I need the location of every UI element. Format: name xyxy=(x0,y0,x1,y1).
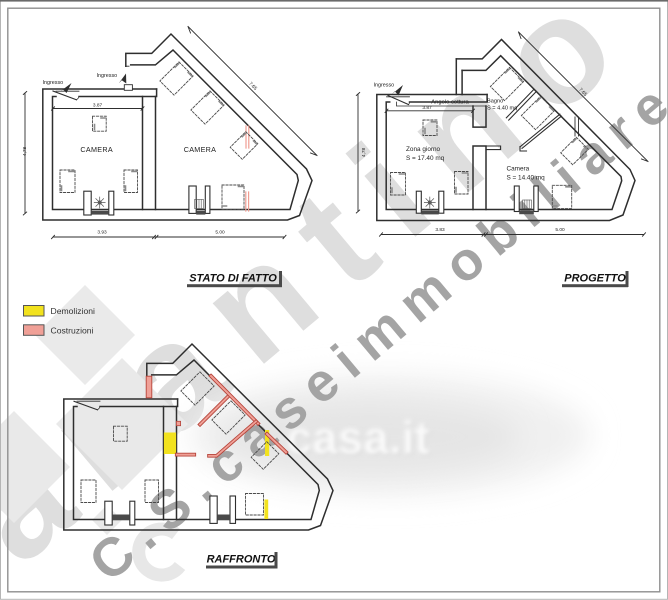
svg-text:S = 14.40 mq: S = 14.40 mq xyxy=(507,175,546,182)
svg-text:4,78: 4,78 xyxy=(22,147,28,157)
svg-text:CAMERA: CAMERA xyxy=(184,145,217,154)
svg-text:Bagno: Bagno xyxy=(487,99,503,105)
svg-text:S = 17.40 mq: S = 17.40 mq xyxy=(406,155,445,162)
svg-text:Angolo cottura: Angolo cottura xyxy=(431,100,469,106)
svg-text:3.87: 3.87 xyxy=(422,105,432,111)
svg-text:Camera: Camera xyxy=(507,166,530,173)
svg-text:Ingresso: Ingresso xyxy=(374,83,395,89)
svg-text:5.00: 5.00 xyxy=(215,230,225,236)
svg-text:3.93: 3.93 xyxy=(97,230,107,236)
svg-text:Costruzioni: Costruzioni xyxy=(51,326,94,336)
svg-text:S = 4.40 mq: S = 4.40 mq xyxy=(487,106,517,112)
svg-text:CAMERA: CAMERA xyxy=(80,145,113,154)
svg-text:PROGETTO: PROGETTO xyxy=(564,273,626,285)
svg-text:3.83: 3.83 xyxy=(435,227,445,233)
svg-text:3.87: 3.87 xyxy=(93,103,103,109)
svg-text:Demolizioni: Demolizioni xyxy=(51,306,96,316)
svg-text:STATO DI FATTO: STATO DI FATTO xyxy=(189,273,277,285)
svg-text:Ingresso: Ingresso xyxy=(97,73,118,79)
svg-text:5.00: 5.00 xyxy=(555,227,565,233)
svg-text:4,78: 4,78 xyxy=(361,148,367,158)
svg-text:Ingresso: Ingresso xyxy=(43,80,64,86)
svg-text:RAFFRONTO: RAFFRONTO xyxy=(207,554,276,566)
svg-text:Zona giorno: Zona giorno xyxy=(406,146,441,153)
